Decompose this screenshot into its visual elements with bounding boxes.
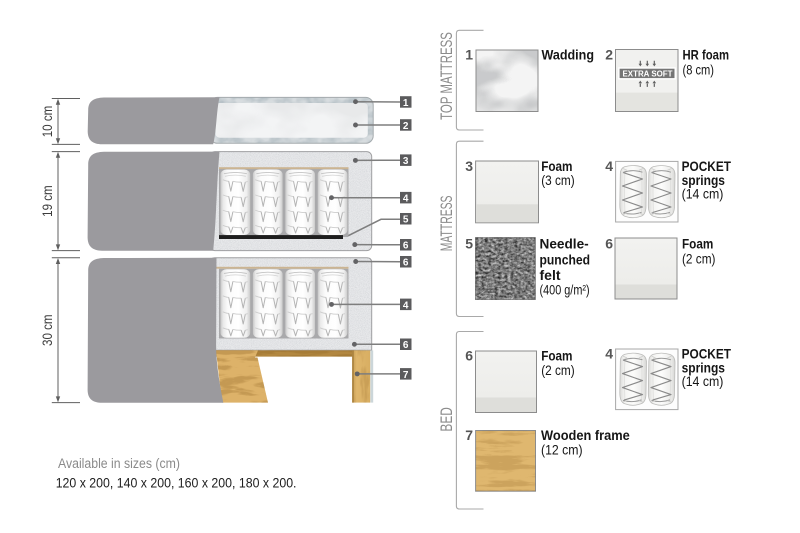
svg-text:5: 5: [403, 215, 409, 226]
svg-text:(2 cm): (2 cm): [541, 362, 575, 378]
svg-text:Needle-: Needle-: [540, 236, 590, 252]
svg-text:(8 cm): (8 cm): [683, 61, 715, 77]
svg-text:3: 3: [403, 156, 409, 167]
svg-text:felt: felt: [540, 267, 561, 283]
svg-text:6: 6: [403, 340, 409, 351]
svg-text:Wooden frame: Wooden frame: [541, 427, 630, 443]
svg-text:2: 2: [403, 121, 409, 132]
svg-text:6: 6: [403, 258, 409, 269]
svg-text:(3 cm): (3 cm): [541, 172, 575, 188]
svg-text:7: 7: [403, 370, 409, 381]
svg-text:2: 2: [605, 47, 613, 63]
svg-text:TOP MATTRESS: TOP MATTRESS: [437, 32, 456, 120]
svg-text:1: 1: [403, 98, 409, 109]
svg-text:6: 6: [403, 241, 409, 252]
svg-text:5: 5: [465, 236, 473, 252]
svg-text:120 x 200, 140 x 200, 160 x 20: 120 x 200, 140 x 200, 160 x 200, 180 x 2…: [56, 475, 297, 491]
svg-text:EXTRA SOFT: EXTRA SOFT: [623, 68, 674, 78]
svg-text:HR foam: HR foam: [683, 47, 730, 63]
svg-text:(2 cm): (2 cm): [682, 251, 716, 267]
svg-text:(12 cm): (12 cm): [541, 441, 583, 457]
svg-text:Foam: Foam: [682, 236, 713, 252]
svg-text:MATTRESS: MATTRESS: [437, 196, 456, 252]
svg-text:4: 4: [605, 158, 613, 174]
svg-text:7: 7: [465, 427, 473, 443]
svg-text:(14 cm): (14 cm): [682, 373, 724, 389]
svg-text:4: 4: [403, 194, 409, 205]
svg-text:6: 6: [605, 236, 613, 252]
svg-text:6: 6: [465, 348, 473, 364]
svg-text:19 cm: 19 cm: [40, 185, 55, 217]
svg-text:3: 3: [465, 158, 473, 174]
svg-text:(400 g/m²): (400 g/m²): [540, 282, 590, 298]
svg-text:1: 1: [465, 47, 473, 63]
svg-text:Wadding: Wadding: [542, 47, 595, 63]
svg-text:BED: BED: [437, 407, 456, 431]
svg-text:30 cm: 30 cm: [40, 314, 55, 346]
svg-text:Available in sizes (cm): Available in sizes (cm): [58, 456, 180, 471]
svg-text:(14 cm): (14 cm): [682, 186, 724, 202]
svg-text:10 cm: 10 cm: [40, 106, 55, 138]
svg-text:4: 4: [605, 345, 613, 361]
svg-text:punched: punched: [540, 251, 591, 267]
svg-text:4: 4: [403, 300, 409, 311]
